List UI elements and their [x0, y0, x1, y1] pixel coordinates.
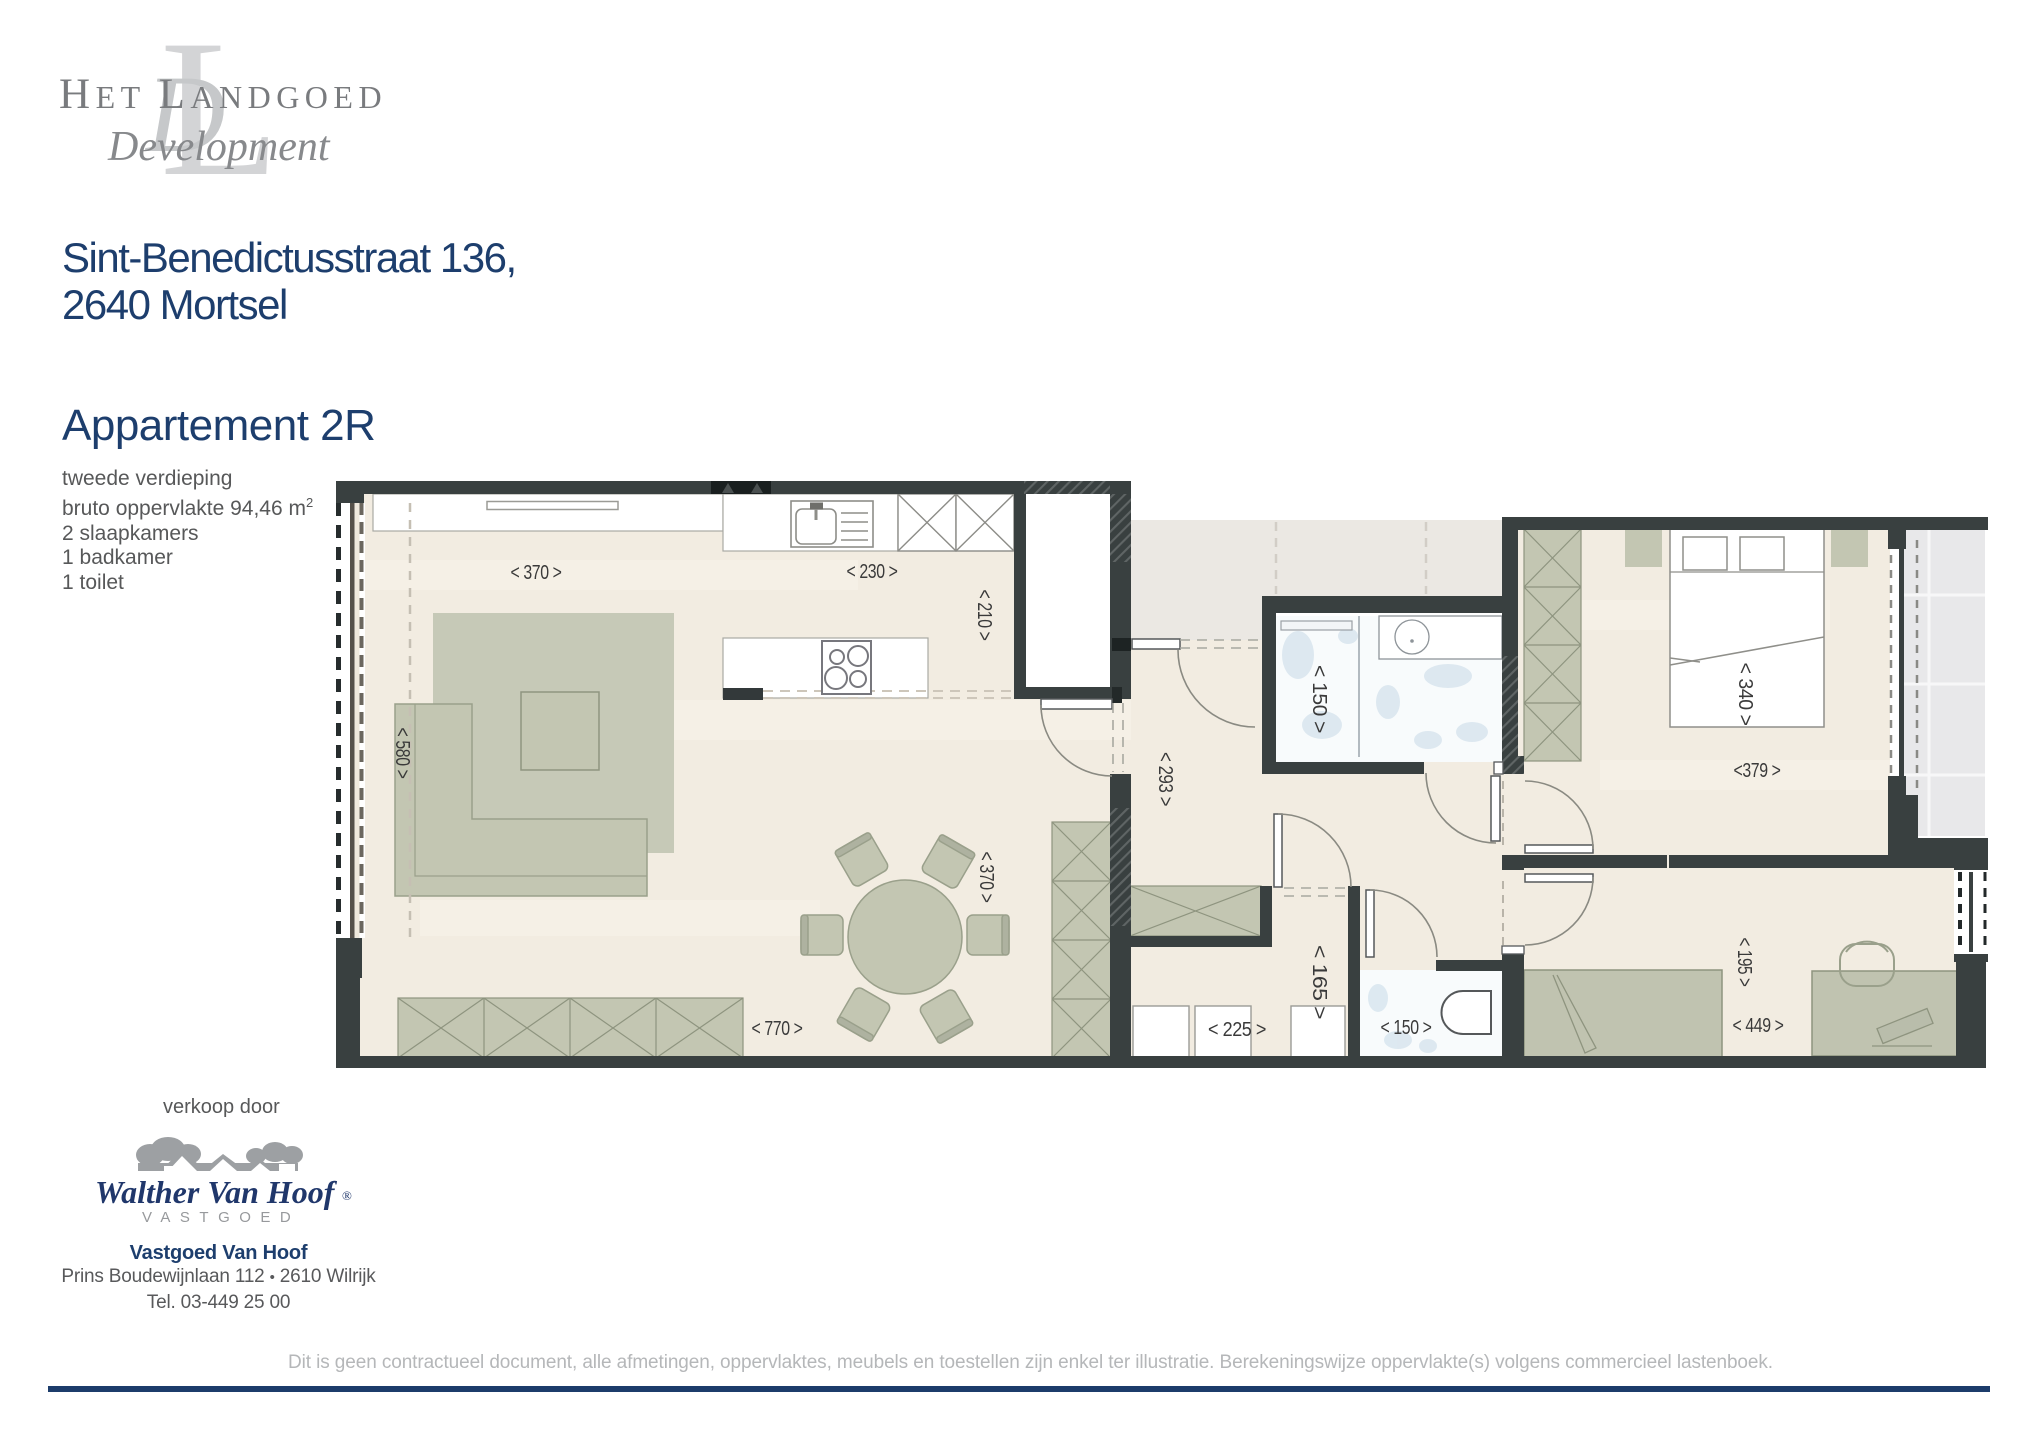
svg-text:< 225 >: < 225 > [1208, 1019, 1266, 1041]
svg-text:< 370 >: < 370 > [975, 852, 997, 903]
svg-text:< 150 >: < 150 > [1381, 1017, 1432, 1039]
svg-text:<379 >: <379 > [1734, 760, 1781, 782]
svg-text:< 195 >: < 195 > [1733, 938, 1755, 987]
svg-text:< 580 >: < 580 > [391, 728, 413, 779]
svg-text:< 230 >: < 230 > [847, 561, 898, 583]
svg-text:< 293 >: < 293 > [1154, 752, 1176, 806]
svg-text:< 340 >: < 340 > [1734, 663, 1756, 726]
svg-text:< 449 >: < 449 > [1733, 1015, 1784, 1037]
svg-text:< 150 >: < 150 > [1308, 665, 1330, 733]
svg-text:< 370 >: < 370 > [511, 562, 562, 584]
svg-text:< 165 >: < 165 > [1308, 945, 1330, 1019]
svg-text:< 210 >: < 210 > [973, 590, 995, 641]
svg-text:< 770 >: < 770 > [752, 1018, 803, 1040]
